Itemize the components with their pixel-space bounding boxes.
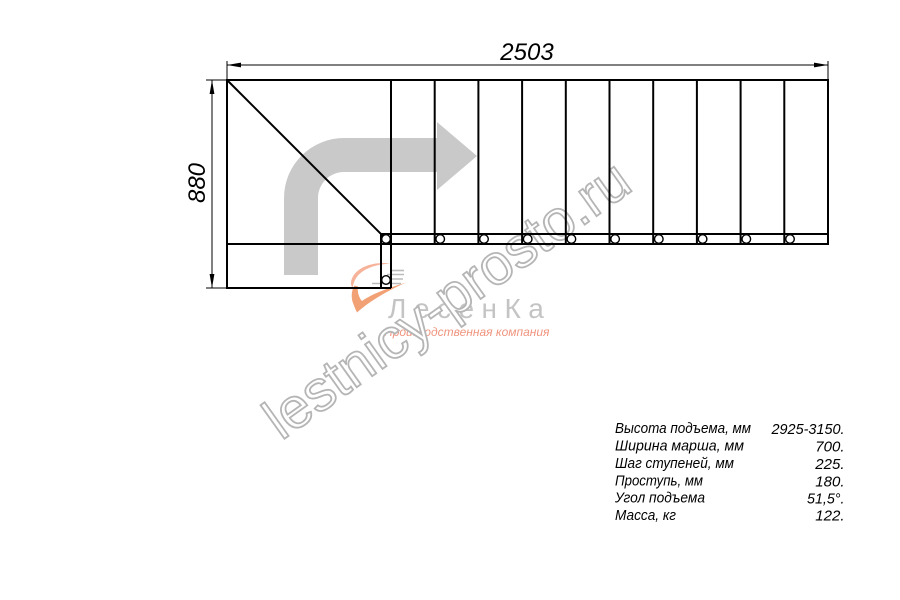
svg-text:2925-3150.: 2925-3150. — [771, 421, 845, 438]
svg-text:Масса, кг: Масса, кг — [615, 507, 677, 524]
svg-text:Угол подъема: Угол подъема — [614, 490, 705, 507]
svg-text:880: 880 — [184, 162, 211, 203]
svg-text:2503: 2503 — [499, 39, 554, 66]
svg-text:Шаг ступеней, мм: Шаг ступеней, мм — [615, 455, 734, 472]
svg-text:51,5°.: 51,5°. — [807, 491, 845, 508]
svg-text:122.: 122. — [815, 507, 844, 524]
svg-text:180.: 180. — [815, 473, 844, 490]
svg-text:Ширина марша, мм: Ширина марша, мм — [615, 438, 744, 455]
svg-text:Проступь, мм: Проступь, мм — [615, 472, 703, 489]
svg-text:700.: 700. — [815, 439, 844, 456]
svg-text:225.: 225. — [814, 456, 844, 473]
svg-text:Высота подъема, мм: Высота подъема, мм — [615, 420, 751, 437]
